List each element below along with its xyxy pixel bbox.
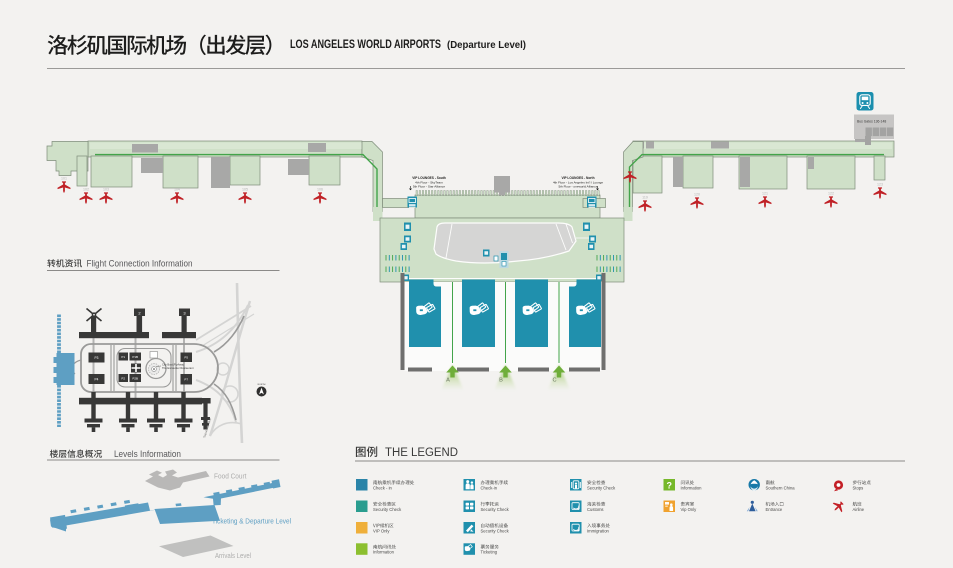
svg-text:Immigration: Immigration [587,528,610,533]
svg-text:Customs: Customs [587,507,604,512]
svg-text:Security Check: Security Check [373,507,402,512]
svg-text:Airline: Airline [853,507,865,512]
svg-text:The Encounter Restaurant: The Encounter Restaurant [162,366,194,370]
svg-text:A: A [446,378,450,384]
svg-text:Stops: Stops [853,485,864,490]
svg-text:VIP LOUNGES - South: VIP LOUNGES - South [412,176,446,180]
svg-text:C: C [552,378,556,384]
svg-text:123: 123 [877,183,883,187]
svg-text:VIP LOUNGES - North: VIP LOUNGES - North [561,176,594,180]
svg-text:Information: Information [681,485,703,490]
svg-text:?: ? [666,480,672,490]
svg-text:101: 101 [61,177,67,181]
svg-text:Check-in: Check-in [481,485,498,490]
svg-text:Information: Information [373,550,395,555]
svg-text:5th Floor - oneworld Alliance: 5th Floor - oneworld Alliance [558,185,597,189]
svg-text:Southern China: Southern China [766,485,796,490]
svg-text:Entrance: Entrance [766,507,783,512]
svg-text:Check - in: Check - in [373,485,393,490]
svg-text:P5: P5 [184,356,188,360]
svg-text:119: 119 [642,196,648,200]
svg-text:Security Check: Security Check [587,485,616,490]
svg-text:P2B: P2B [132,377,138,381]
svg-text:Security Check: Security Check [481,528,510,533]
svg-text:Security Check: Security Check [481,507,510,512]
svg-text:121: 121 [762,192,768,196]
svg-text:P1: P1 [121,355,125,359]
svg-text:Bus Gates 136-148: Bus Gates 136-148 [857,120,886,124]
svg-text:Ticketing & Departure Level: Ticketing & Departure Level [212,519,291,526]
svg-text:Ticketing: Ticketing [481,550,498,555]
svg-text:LOS ANGELES WORLD AIRPORTS: LOS ANGELES WORLD AIRPORTS [290,38,441,51]
svg-text:Levels Information: Levels Information [114,449,181,459]
svg-text:P1B: P1B [132,355,138,359]
svg-text:105: 105 [242,188,248,192]
svg-text:102: 102 [83,188,89,192]
svg-text:P4: P4 [95,378,99,382]
svg-text:103: 103 [103,188,109,192]
svg-text:5th Floor - Star Alliance: 5th Floor - Star Alliance [413,185,445,189]
svg-text:104: 104 [174,188,180,192]
svg-text:VIP Only: VIP Only [373,528,390,533]
svg-text:Flight Connection Information: Flight Connection Information [87,259,193,269]
svg-text:P2: P2 [121,377,125,381]
svg-text:106: 106 [317,188,323,192]
svg-text:NORTH: NORTH [258,384,266,386]
svg-text:B: B [499,378,503,384]
svg-text:Arrivals Level: Arrivals Level [215,553,251,560]
svg-text:P3: P3 [95,356,99,360]
svg-text:P7: P7 [184,378,188,382]
svg-text:Vip Only: Vip Only [681,507,698,512]
svg-text:Food Court: Food Court [214,474,247,481]
svg-text:122: 122 [828,192,834,196]
svg-text:120: 120 [694,193,700,197]
svg-text:(Departure Level): (Departure Level) [447,40,526,51]
svg-text:THE LEGEND: THE LEGEND [385,447,458,459]
